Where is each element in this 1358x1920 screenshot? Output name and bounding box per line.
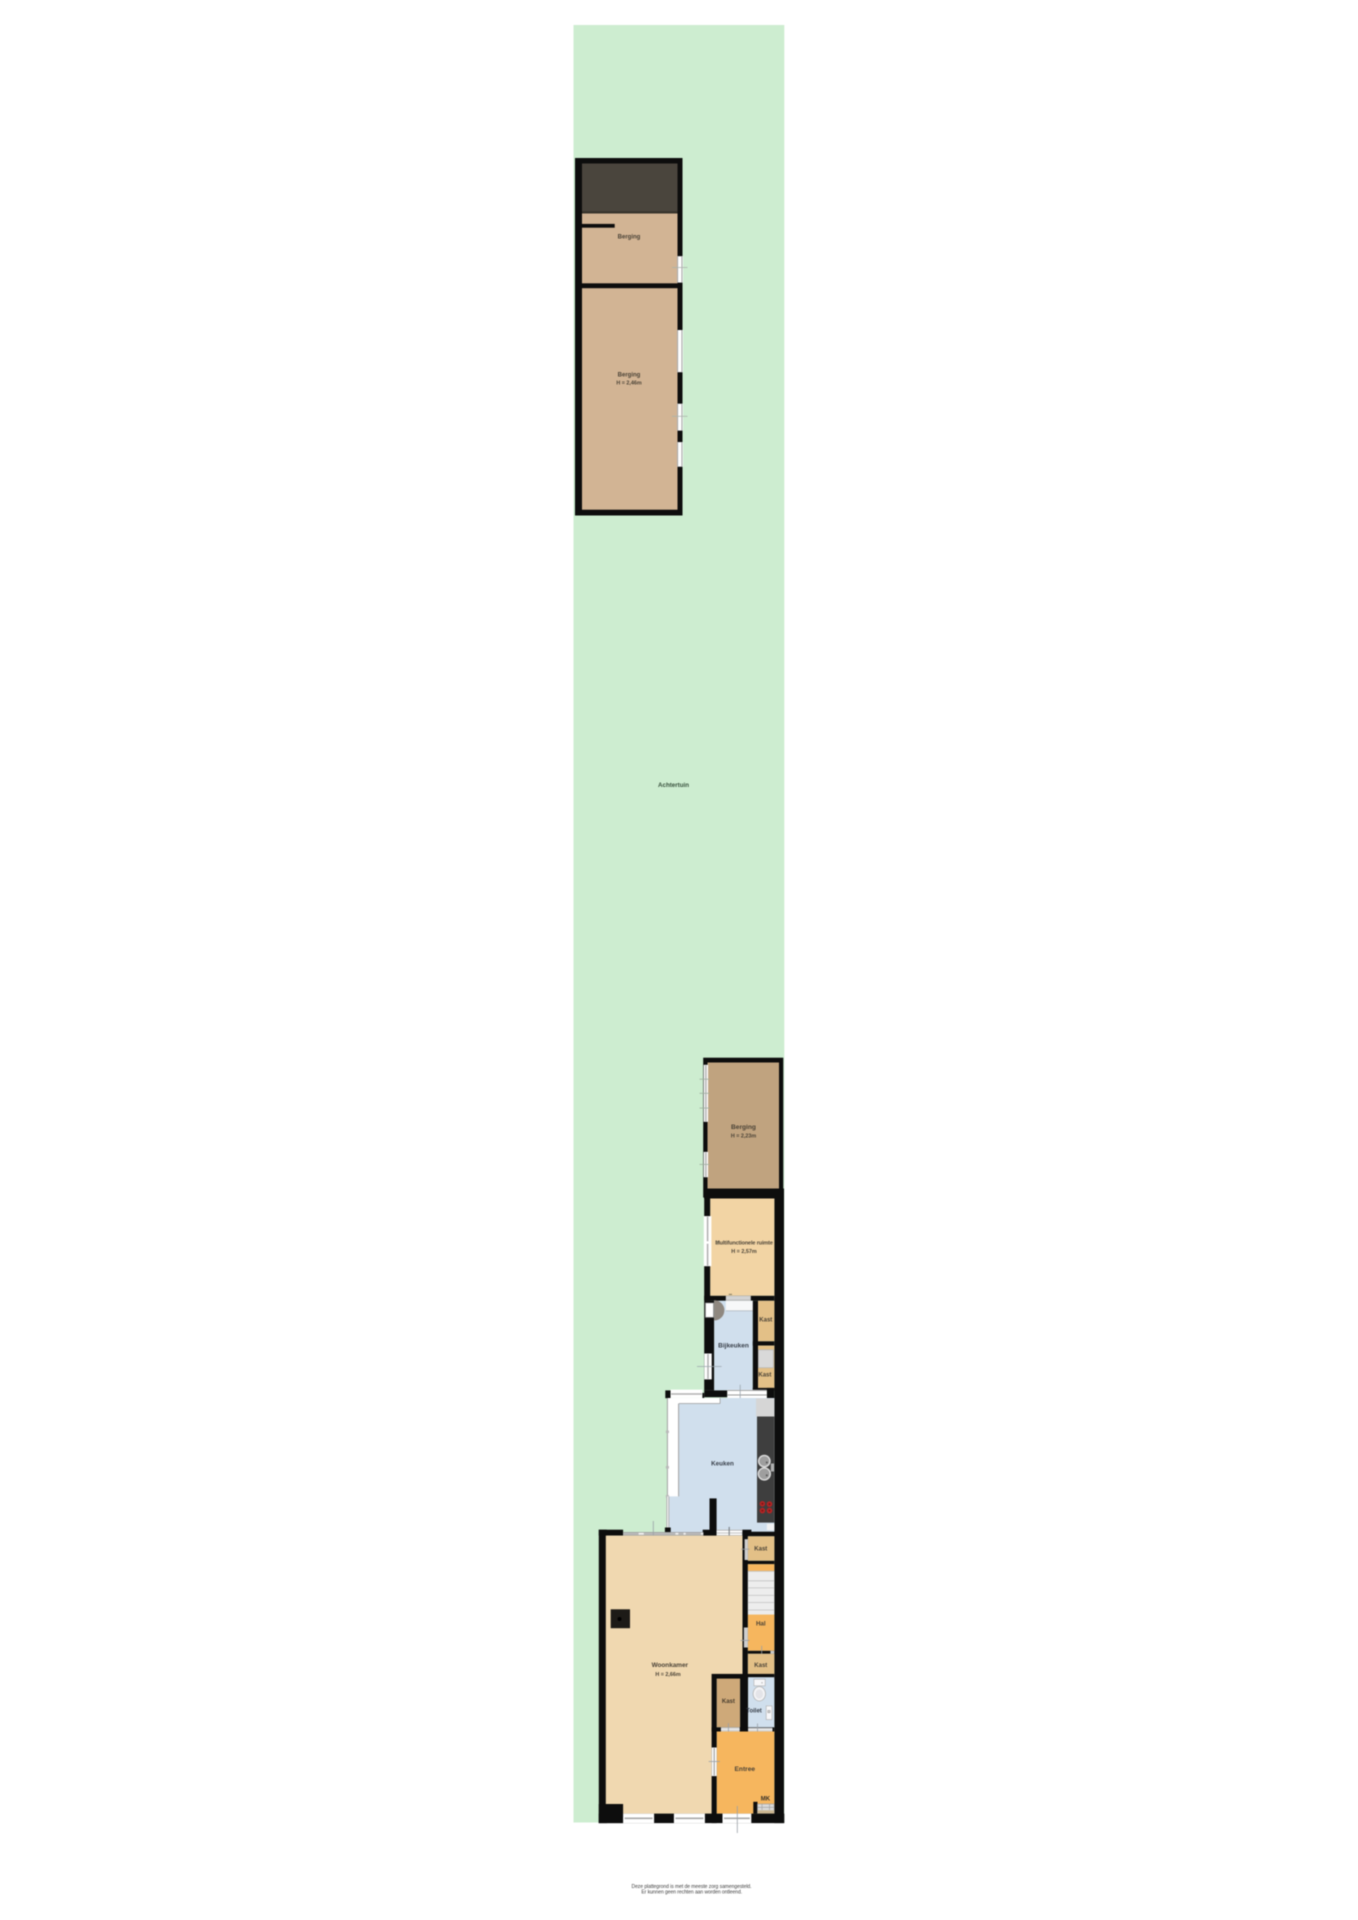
svg-text:Woonkamer: Woonkamer — [652, 1662, 689, 1669]
svg-text:Bijkeuken: Bijkeuken — [718, 1342, 749, 1349]
svg-text:H = 2,23m: H = 2,23m — [731, 1133, 757, 1139]
svg-text:Keuken: Keuken — [711, 1461, 734, 1468]
svg-text:MK: MK — [761, 1797, 771, 1803]
svg-text:H = 2,46m: H = 2,46m — [616, 381, 642, 387]
svg-text:Berging: Berging — [618, 372, 641, 378]
svg-text:Kast: Kast — [754, 1663, 767, 1669]
svg-text:Kast: Kast — [754, 1547, 767, 1553]
svg-text:Kast: Kast — [758, 1372, 771, 1378]
svg-text:Achtertuin: Achtertuin — [658, 782, 689, 789]
svg-text:Berging: Berging — [618, 235, 641, 241]
svg-text:Entree: Entree — [735, 1766, 756, 1773]
svg-text:Hal: Hal — [756, 1620, 766, 1627]
svg-text:Multifunctionele ruimte: Multifunctionele ruimte — [715, 1240, 773, 1246]
svg-text:H = 2,66m: H = 2,66m — [655, 1672, 681, 1678]
svg-text:Berging: Berging — [731, 1124, 756, 1131]
svg-text:H = 2,57m: H = 2,57m — [731, 1249, 757, 1255]
svg-text:Er kunnen geen rechten aan wor: Er kunnen geen rechten aan worden ontlee… — [641, 1889, 742, 1895]
svg-text:Kast: Kast — [759, 1317, 772, 1323]
svg-text:Toilet: Toilet — [746, 1708, 762, 1714]
svg-text:Kast: Kast — [722, 1699, 735, 1705]
